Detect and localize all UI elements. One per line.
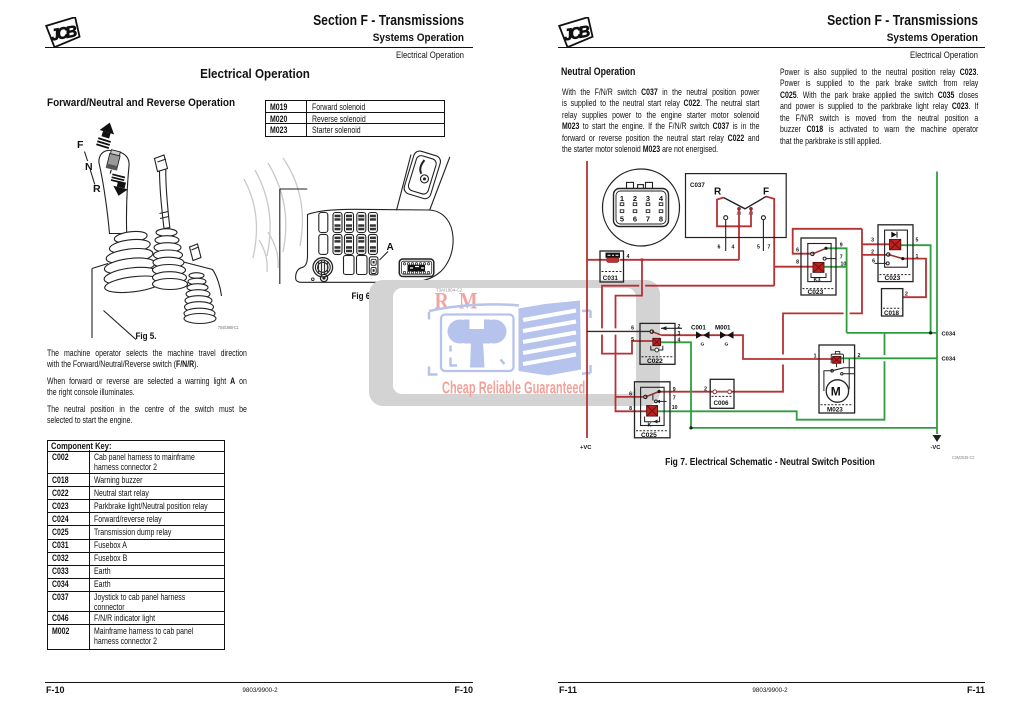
- svg-text:5: 5: [757, 245, 760, 251]
- svg-text:K3: K3: [814, 278, 821, 284]
- svg-text:2: 2: [905, 292, 908, 298]
- svg-text:6: 6: [872, 259, 875, 265]
- svg-text:3: 3: [871, 238, 874, 244]
- svg-text:F: F: [77, 139, 84, 151]
- svg-text:4: 4: [678, 338, 681, 344]
- svg-text:K: K: [648, 423, 652, 429]
- svg-text:5: 5: [916, 238, 919, 244]
- svg-text:C018: C018: [884, 310, 900, 317]
- svg-text:10: 10: [672, 405, 678, 411]
- svg-text:C031: C031: [603, 275, 619, 282]
- svg-text:10: 10: [841, 262, 847, 268]
- svg-text:9: 9: [840, 243, 843, 249]
- svg-text:F: F: [763, 187, 769, 198]
- svg-text:C006: C006: [714, 400, 730, 407]
- svg-text:2: 2: [633, 194, 637, 203]
- svg-text:C023: C023: [885, 275, 901, 282]
- svg-text:R: R: [714, 187, 722, 198]
- svg-text:8: 8: [659, 215, 663, 224]
- svg-text:R: R: [93, 183, 101, 195]
- svg-text:G: G: [725, 342, 729, 348]
- svg-text:M: M: [459, 288, 478, 314]
- svg-text:8: 8: [796, 260, 799, 266]
- svg-text:8: 8: [629, 406, 632, 412]
- svg-text:6: 6: [718, 245, 721, 251]
- svg-text:7: 7: [646, 215, 650, 224]
- svg-text:C025: C025: [641, 432, 657, 439]
- svg-text:3: 3: [678, 331, 681, 337]
- svg-text:C034: C034: [942, 357, 957, 363]
- svg-text:6: 6: [633, 215, 637, 224]
- svg-text:4: 4: [659, 194, 664, 203]
- svg-text:2: 2: [858, 353, 861, 359]
- svg-text:M: M: [831, 384, 841, 398]
- svg-text:3: 3: [646, 194, 650, 203]
- svg-text:M001: M001: [715, 325, 731, 332]
- svg-text:C001: C001: [691, 325, 706, 332]
- svg-text:1: 1: [620, 194, 624, 203]
- svg-text:4: 4: [627, 254, 630, 260]
- svg-text:6: 6: [796, 248, 799, 254]
- svg-text:2: 2: [678, 324, 681, 330]
- svg-text:7: 7: [840, 255, 843, 261]
- svg-text:7: 7: [768, 245, 771, 251]
- svg-text:C034: C034: [942, 331, 957, 337]
- svg-text:2: 2: [704, 386, 707, 392]
- svg-text:4: 4: [732, 245, 735, 251]
- svg-text:6: 6: [631, 326, 634, 332]
- svg-text:9: 9: [673, 387, 676, 393]
- svg-text:M023: M023: [827, 406, 843, 413]
- svg-text:+VC: +VC: [580, 445, 592, 451]
- svg-text:N: N: [85, 161, 93, 173]
- svg-text:G: G: [701, 342, 705, 348]
- svg-text:C023: C023: [808, 289, 824, 296]
- svg-text:5: 5: [620, 215, 624, 224]
- svg-text:7: 7: [673, 396, 676, 402]
- svg-text:1: 1: [916, 254, 919, 260]
- svg-text:2: 2: [871, 250, 874, 256]
- svg-text:C037: C037: [690, 182, 705, 189]
- svg-text:-VC: -VC: [931, 445, 942, 451]
- svg-text:C022: C022: [647, 358, 663, 365]
- svg-text:5: 5: [631, 337, 634, 343]
- svg-text:Cheap Reliable Guaranteed: Cheap Reliable Guaranteed: [442, 379, 585, 398]
- svg-text:6: 6: [629, 392, 632, 398]
- svg-text:1: 1: [814, 354, 817, 360]
